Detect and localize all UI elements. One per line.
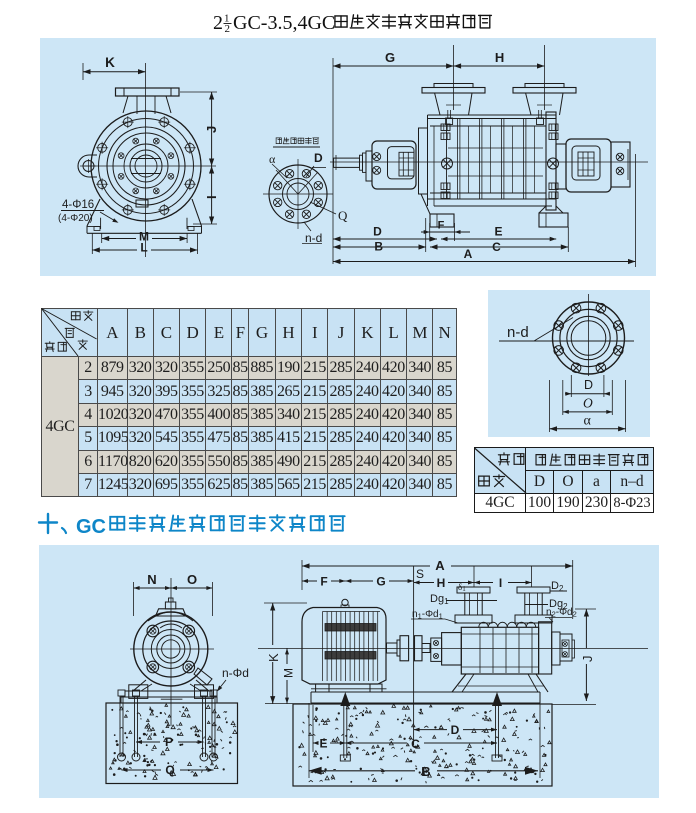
svg-text:M: M: [282, 668, 296, 678]
svg-text:n-Φd: n-Φd: [222, 666, 249, 680]
svg-text:(4-Φ20): (4-Φ20): [58, 213, 93, 224]
svg-text:O: O: [187, 572, 197, 587]
svg-text:J: J: [204, 126, 219, 133]
svg-text:E: E: [319, 737, 327, 751]
svg-text:C: C: [492, 240, 501, 254]
svg-text:n-d: n-d: [507, 324, 529, 341]
svg-text:4-Φ16: 4-Φ16: [62, 199, 94, 211]
svg-text:n-d: n-d: [305, 231, 322, 245]
svg-text:B: B: [374, 240, 383, 254]
svg-text:I: I: [204, 195, 219, 199]
svg-text:N: N: [147, 572, 156, 587]
svg-text:D: D: [451, 723, 460, 737]
svg-text:F: F: [320, 575, 327, 589]
svg-text:GC: GC: [76, 516, 106, 538]
svg-text:H: H: [495, 50, 504, 65]
svg-text:O: O: [583, 396, 593, 411]
svg-text:D: D: [314, 151, 323, 165]
svg-text:H: H: [437, 576, 446, 590]
svg-text:K: K: [105, 55, 115, 70]
svg-text:G: G: [385, 50, 395, 65]
svg-text:Q: Q: [338, 208, 348, 223]
svg-text:F: F: [438, 220, 445, 232]
svg-text:α: α: [269, 152, 276, 166]
svg-text:n2-Φd2: n2-Φd2: [546, 607, 577, 619]
svg-text:K: K: [266, 653, 281, 662]
svg-text:S: S: [416, 567, 424, 581]
svg-text:2: 2: [213, 12, 223, 34]
svg-text:α: α: [584, 414, 592, 429]
svg-text:B: B: [421, 764, 430, 779]
svg-text:C: C: [411, 737, 420, 751]
svg-text:D: D: [373, 225, 382, 239]
svg-text:E: E: [494, 225, 502, 239]
svg-text:2: 2: [225, 23, 231, 35]
svg-text:G: G: [376, 575, 385, 589]
svg-text:A: A: [435, 558, 445, 573]
svg-text:J: J: [580, 656, 595, 663]
svg-text:GC-3.5,4GC: GC-3.5,4GC: [233, 12, 335, 34]
svg-text:D: D: [584, 378, 593, 392]
svg-text:I: I: [499, 576, 502, 590]
svg-text:A: A: [464, 247, 473, 261]
svg-text:L: L: [140, 241, 147, 255]
